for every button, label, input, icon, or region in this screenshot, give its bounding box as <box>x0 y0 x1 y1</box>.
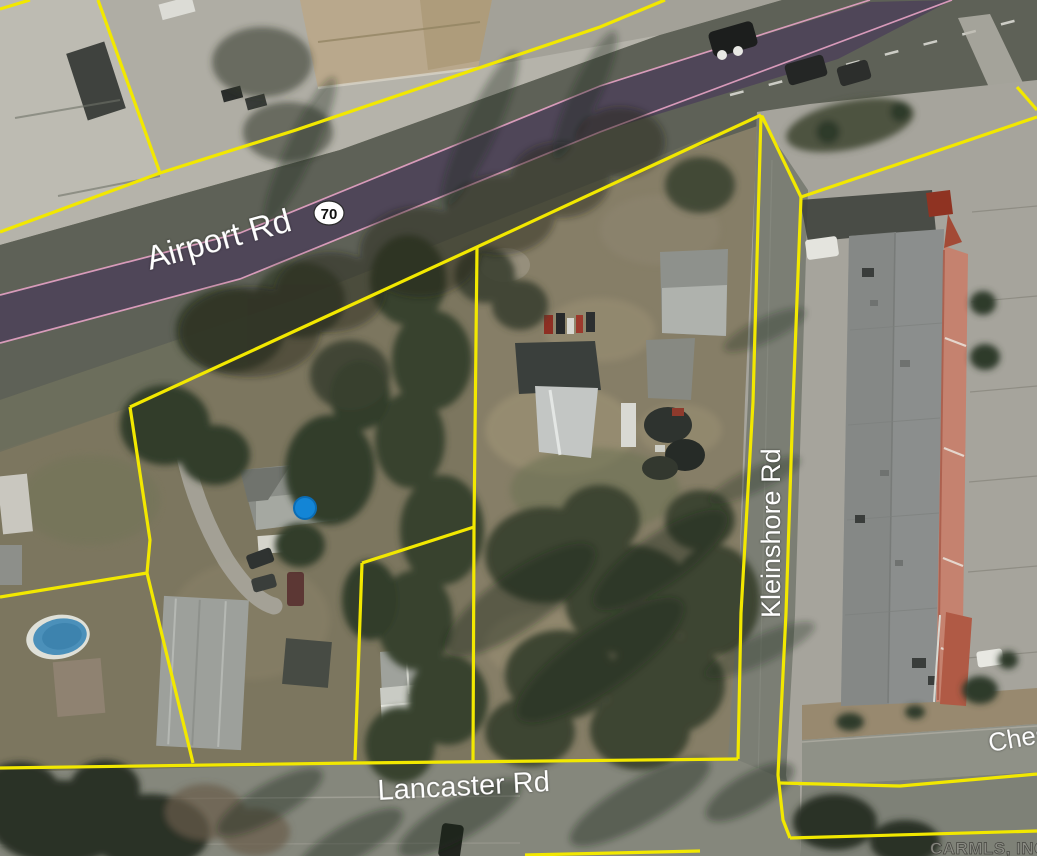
strip-mall-building <box>841 190 972 706</box>
map-canvas[interactable]: Airport Rd 70 Kleinshore Rd Lancaster Rd… <box>0 0 1037 856</box>
red-roof-feature <box>926 190 953 217</box>
red-car <box>287 572 304 606</box>
white-trailer <box>621 403 636 447</box>
gray-shed-mid <box>646 338 695 400</box>
kleinshore-rd-label: Kleinshore Rd <box>756 448 786 618</box>
carmls-watermark: CARMLS, INC <box>930 839 1037 856</box>
highway-70-shield-label: 70 <box>321 206 338 223</box>
house-roof <box>53 658 106 717</box>
highway-70-shield: 70 <box>314 201 344 225</box>
property-marker[interactable] <box>294 497 316 519</box>
aerial-map[interactable]: Airport Rd 70 Kleinshore Rd Lancaster Rd… <box>0 0 1037 856</box>
